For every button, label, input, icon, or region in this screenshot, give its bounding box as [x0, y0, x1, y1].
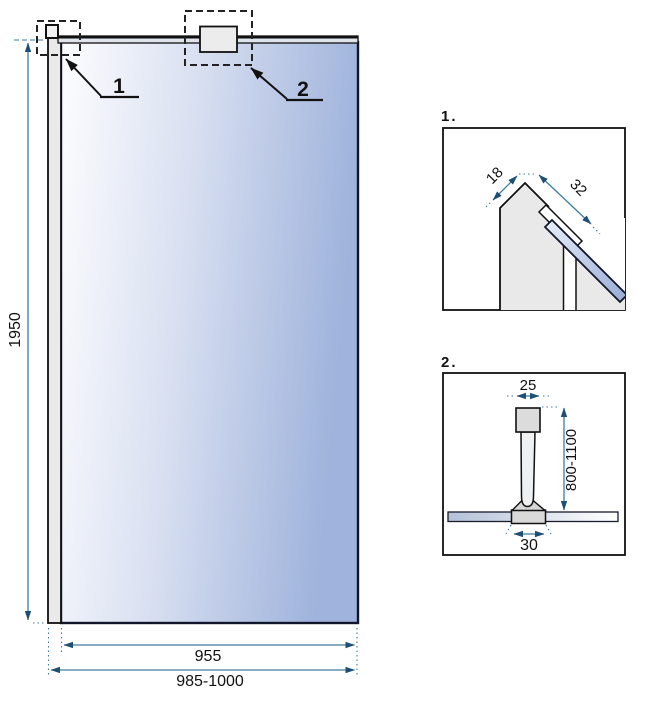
- detail-2-clamp-block: [512, 510, 546, 524]
- wall-profile: [48, 38, 61, 623]
- height-dimension-label: 1950: [7, 312, 24, 348]
- shower-screen-technical-diagram: 1950 1 2: [0, 0, 645, 709]
- detail-2-title: 2.: [441, 354, 458, 371]
- detail-2-dim-length-label: 800-1100: [563, 429, 580, 491]
- detail-1-title: 1.: [441, 108, 458, 125]
- detail-view-1: 1. 18: [441, 108, 629, 311]
- wall-profile-top-tab: [46, 25, 58, 38]
- bar-bracket: [200, 27, 237, 53]
- total-width-label: 985-1000: [176, 673, 244, 690]
- main-view: 1950 1 2: [7, 11, 358, 690]
- detail-view-2: 2. 25 800-1100: [441, 354, 625, 555]
- detail-2-support-shaft: [521, 432, 535, 507]
- technical-drawing-canvas: 1950 1 2: [0, 0, 645, 709]
- detail-2-dim-30-label: 30: [520, 537, 538, 554]
- detail-2-dim-25-label: 25: [520, 377, 537, 394]
- dimension-height: 1950: [7, 40, 46, 623]
- detail-2-top-block: [516, 408, 540, 432]
- glass-width-label: 955: [195, 648, 222, 665]
- glass-panel: [61, 42, 358, 623]
- callout-1-label: 1: [113, 75, 125, 98]
- callout-2-label: 2: [297, 78, 309, 101]
